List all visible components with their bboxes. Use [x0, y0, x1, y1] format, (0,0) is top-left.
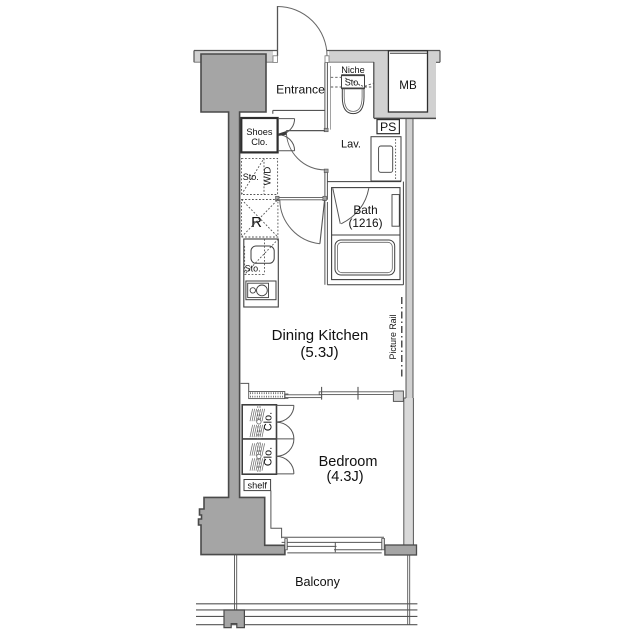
svg-text:Balcony: Balcony [295, 575, 341, 589]
svg-text:Sto.: Sto. [245, 263, 261, 273]
svg-text:Bedroom: Bedroom [319, 454, 378, 470]
svg-text:Clo.: Clo. [262, 447, 274, 466]
svg-text:Lav.: Lav. [341, 138, 361, 150]
svg-text:Clo.: Clo. [262, 412, 274, 431]
svg-text:Clo.: Clo. [251, 137, 267, 147]
svg-text:Shoes: Shoes [246, 127, 272, 137]
svg-text:PS: PS [380, 120, 396, 134]
svg-text:Picture Rail: Picture Rail [388, 314, 398, 359]
svg-text:R: R [251, 214, 262, 231]
svg-text:(5.3J): (5.3J) [300, 344, 338, 361]
svg-text:Entrance: Entrance [276, 82, 325, 96]
svg-text:(1216): (1216) [348, 216, 382, 230]
svg-text:Dining Kitchen: Dining Kitchen [272, 327, 369, 344]
svg-text:(4.3J): (4.3J) [326, 469, 363, 485]
svg-text:Sto.: Sto. [243, 172, 259, 182]
svg-text:Niche: Niche [341, 65, 365, 75]
svg-text:Bath: Bath [353, 203, 377, 217]
svg-text:MB: MB [399, 79, 417, 92]
svg-text:shelf: shelf [247, 481, 267, 491]
svg-text:W/D: W/D [263, 167, 274, 186]
